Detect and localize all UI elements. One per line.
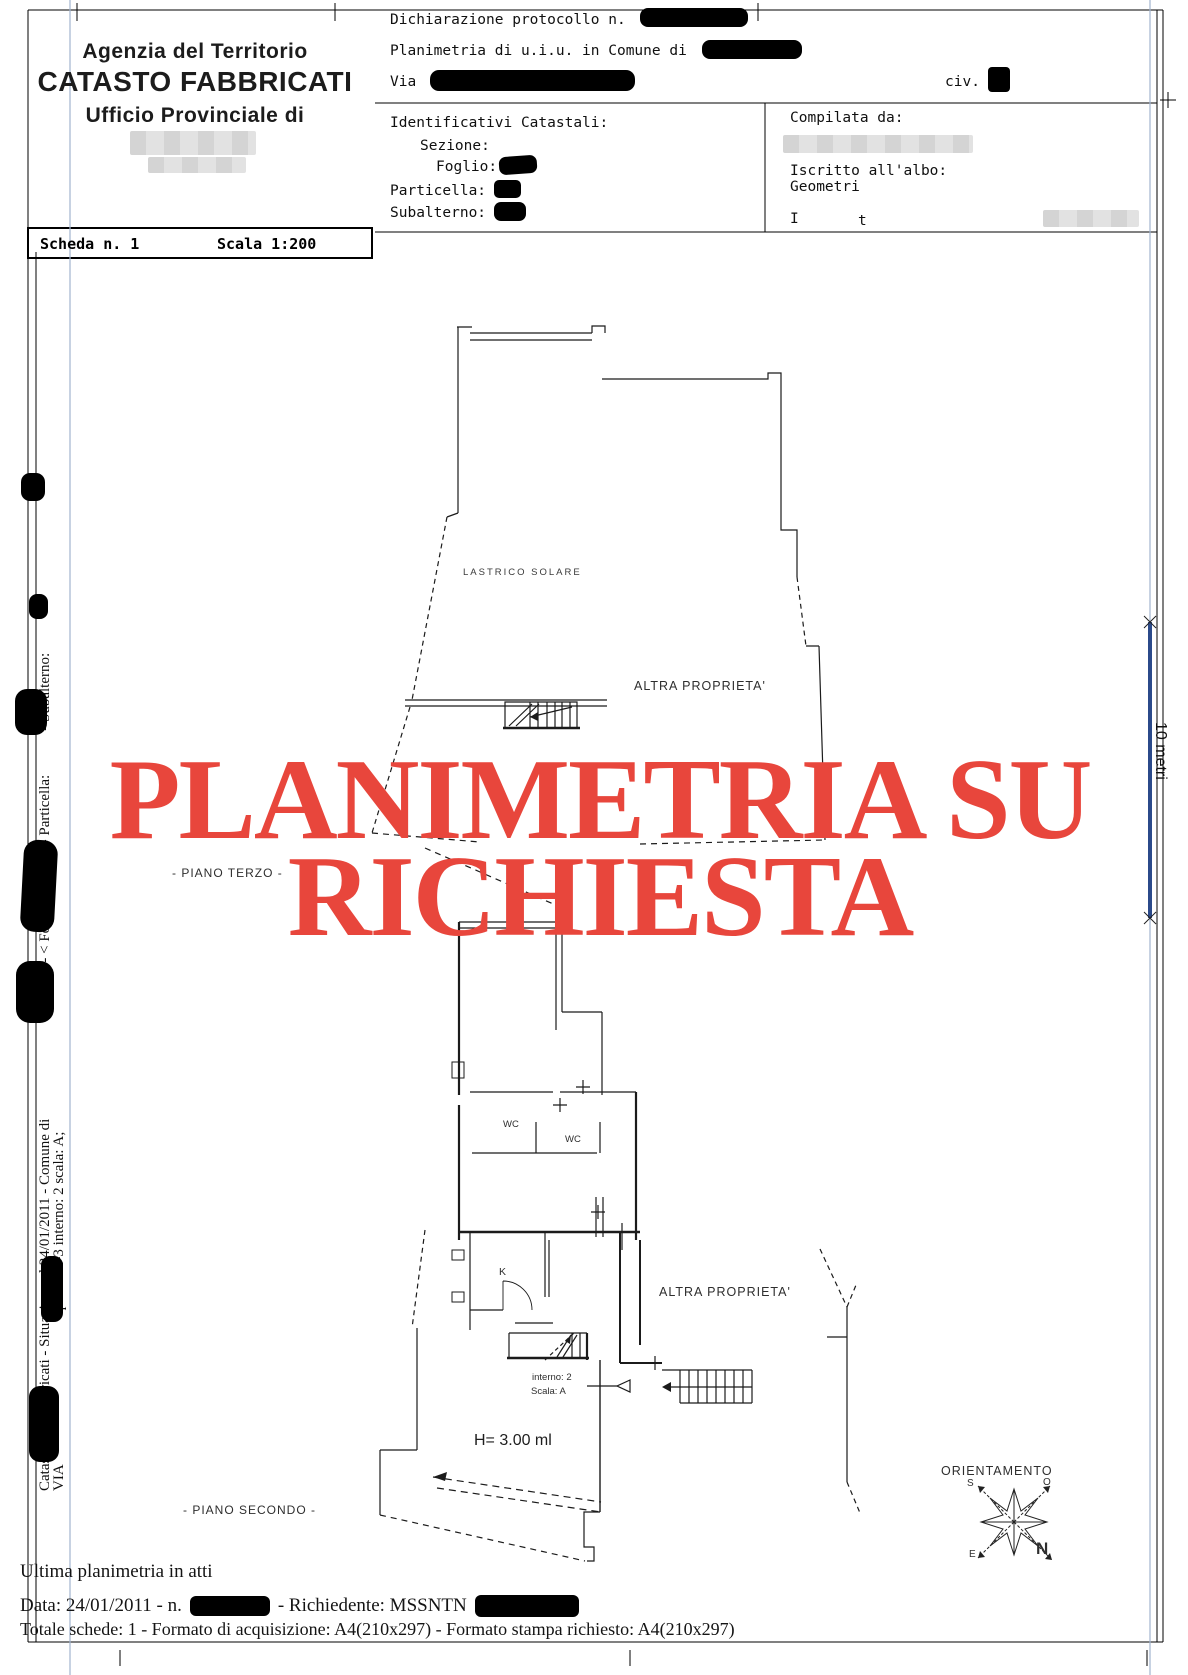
ufficio-label: Ufficio Provinciale di: [30, 104, 360, 128]
lower-floor-plan: [380, 905, 860, 1561]
scale-value: Scala 1:200: [217, 235, 316, 253]
watermark: PLANIMETRIA SU RICHIESTA: [40, 752, 1160, 946]
sidebar-catasto-text-3: - Particella:: [37, 775, 54, 845]
scheda-number: Scheda n. 1: [40, 235, 139, 253]
kitchen-label: K: [499, 1266, 506, 1278]
identificativi-title: Identificativi Catastali:: [390, 115, 608, 131]
sidebar-redaction-3: [15, 689, 47, 735]
interno-label: interno: 2: [532, 1372, 572, 1383]
data-row: Data: 24/01/2011 - n. - Richiedente: MSS…: [20, 1595, 579, 1617]
comune-redaction: [702, 40, 802, 59]
protocol-label: Dichiarazione protocollo n.: [390, 12, 626, 28]
height-label: H= 3.00 ml: [474, 1432, 552, 1450]
via-redaction: [430, 70, 635, 91]
subalterno-redaction: [494, 202, 526, 221]
agency-name: Agenzia del Territorio: [30, 40, 360, 64]
sidebar-redaction-6: [41, 1256, 63, 1322]
albo-label: Iscritto all'albo:: [790, 163, 947, 179]
scale-bar-label: 10 metri: [1151, 722, 1169, 802]
partial-letter-left: I: [790, 211, 799, 227]
ultima-planimetria-note: Ultima planimetria in atti: [20, 1561, 213, 1583]
wc1-label: WC: [503, 1119, 519, 1130]
protocol-number-redaction: [640, 8, 748, 27]
scala-a-label: Scala: A: [531, 1386, 566, 1397]
sidebar-redaction-7: [29, 1386, 59, 1462]
totale-schede-row: Totale schede: 1 - Formato di acquisizio…: [20, 1619, 735, 1640]
wc2-label: WC: [565, 1134, 581, 1145]
catasto-title: CATASTO FABBRICATI: [30, 66, 360, 98]
albo-value: Geometri: [790, 179, 860, 195]
compass-east-label: E: [969, 1549, 976, 1560]
planimetria-label: Planimetria di u.i.u. in Comune di: [390, 43, 687, 59]
compilata-name-redaction: [783, 135, 973, 153]
compass-west-label: O: [1043, 1477, 1051, 1488]
protocol-footer-redaction: [190, 1596, 270, 1616]
compilata-title: Compilata da:: [790, 110, 904, 126]
sidebar-via-text: VIA: [51, 1464, 68, 1491]
compass-south-label: S: [967, 1478, 974, 1489]
lastrico-solare-label: LASTRICO SOLARE: [463, 567, 582, 578]
subalterno-label: Subalterno:: [390, 205, 486, 221]
sidebar-redaction-5: [16, 961, 54, 1023]
via-label: Via: [390, 74, 416, 90]
compilata-right-redaction: [1043, 210, 1139, 227]
sidebar-redaction-4: [20, 839, 59, 933]
cadastral-document-page: Agenzia del Territorio CATASTO FABBRICAT…: [0, 0, 1188, 1675]
partial-letter-right: t: [858, 213, 867, 229]
particella-label: Particella:: [390, 183, 486, 199]
province-redaction: [130, 131, 256, 155]
civ-label: civ.: [945, 74, 980, 90]
sezione-label: Sezione:: [420, 138, 490, 154]
civ-redaction: [988, 67, 1010, 92]
particella-redaction: [494, 180, 521, 198]
piano-secondo-label: - PIANO SECONDO -: [183, 1503, 316, 1517]
province-redaction-2: [148, 157, 246, 173]
altra-proprieta-upper-label: ALTRA PROPRIETA': [634, 679, 766, 693]
sidebar-redaction-2: [29, 594, 48, 619]
piano-terzo-label: - PIANO TERZO -: [172, 866, 283, 880]
foglio-redaction: [498, 155, 537, 176]
data-prefix: Data: 24/01/2011 - n.: [20, 1595, 182, 1617]
altra-proprieta-lower-label: ALTRA PROPRIETA': [659, 1285, 791, 1299]
orientamento-label: ORIENTAMENTO: [941, 1464, 1053, 1478]
compass-north-label: N: [1036, 1539, 1048, 1559]
foglio-label: Foglio:: [436, 159, 497, 175]
richiedente-label: - Richiedente: MSSNTN: [278, 1595, 467, 1617]
richiedente-redaction: [475, 1595, 579, 1617]
sidebar-redaction-1: [21, 473, 45, 501]
